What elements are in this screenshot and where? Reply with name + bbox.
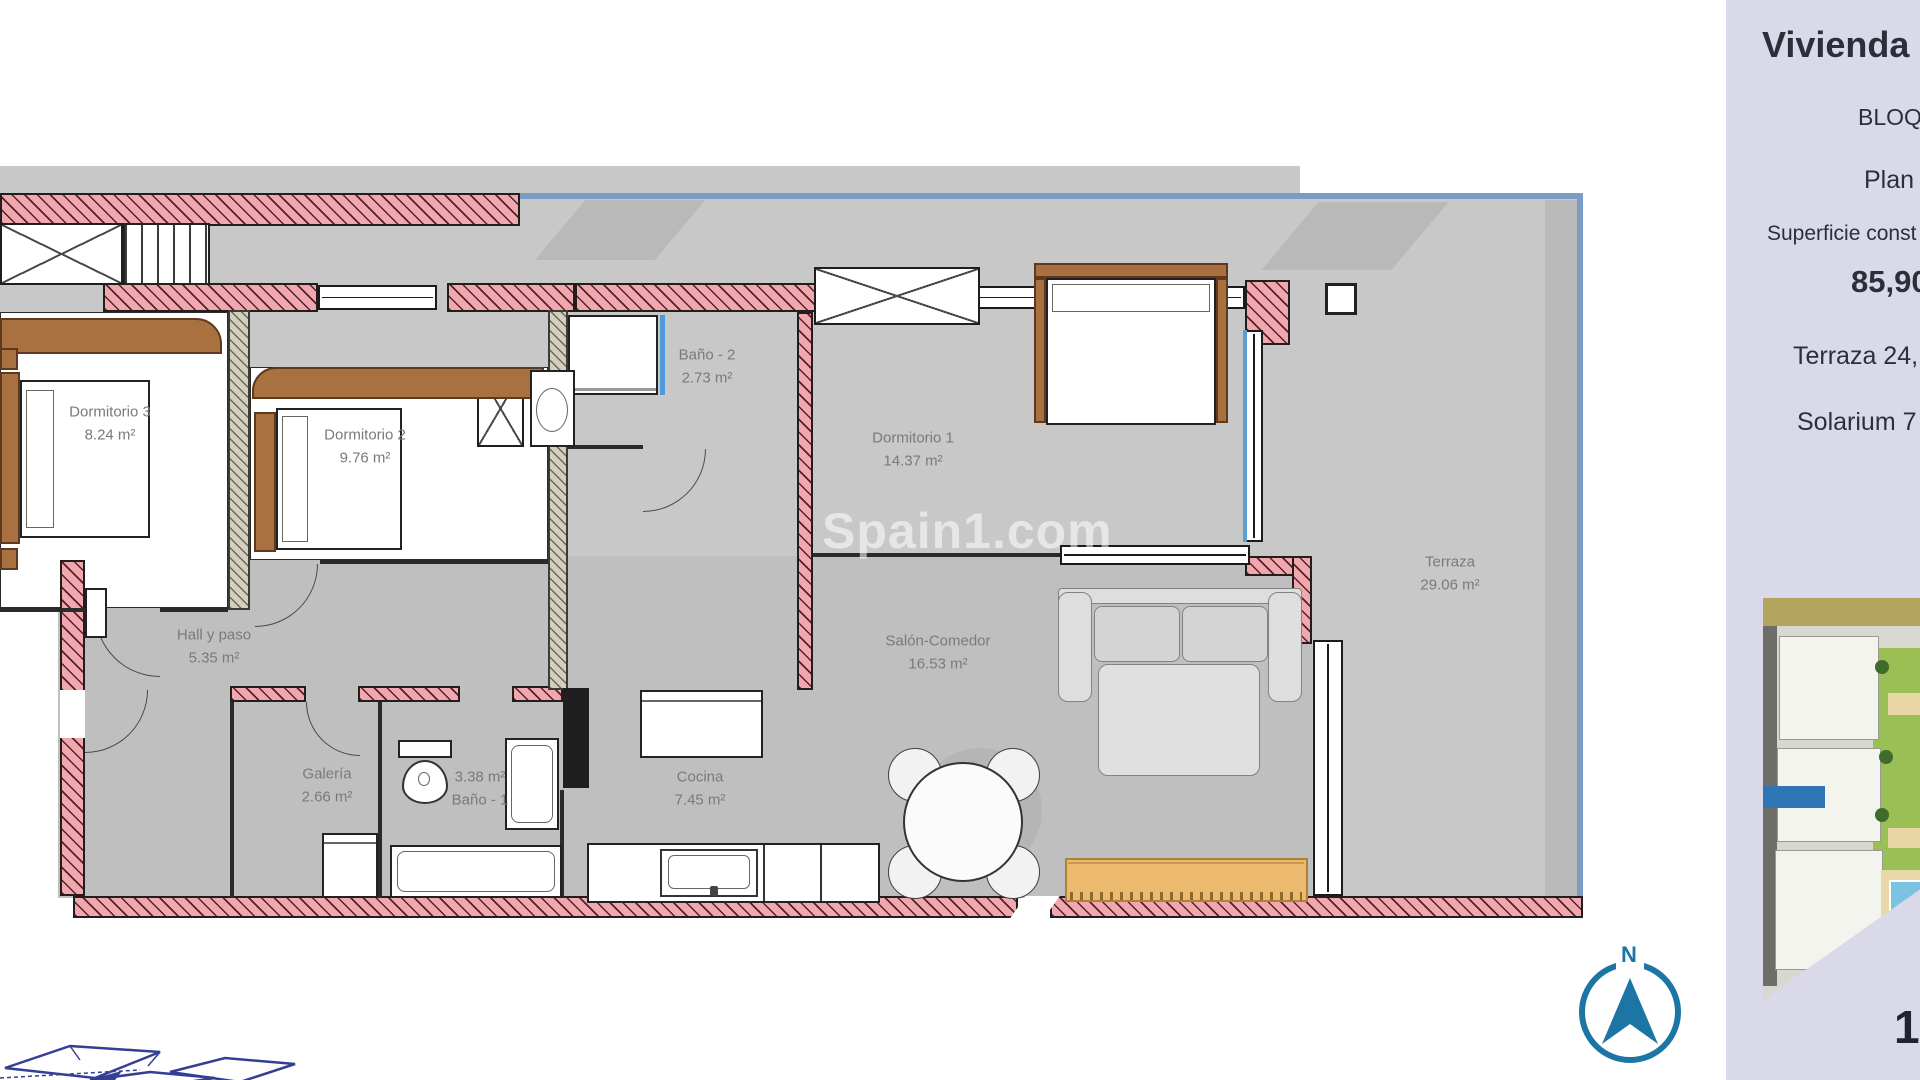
room-label-galeria: Galería2.66 m² bbox=[302, 764, 353, 809]
pillow bbox=[1052, 284, 1210, 312]
nightstand bbox=[0, 348, 18, 370]
site-building bbox=[1779, 636, 1879, 740]
solarium-area: Solarium 7 bbox=[1797, 408, 1917, 437]
partition-line bbox=[320, 560, 548, 564]
palm-tree bbox=[1879, 750, 1893, 764]
wardrobe bbox=[0, 318, 222, 354]
washer-line bbox=[324, 842, 376, 844]
washbasin bbox=[536, 388, 568, 432]
shadow-wedge bbox=[1545, 200, 1579, 896]
room-label-hall: Hall y paso5.35 m² bbox=[177, 625, 251, 670]
partition-line bbox=[378, 702, 382, 898]
sofa-armrest bbox=[1058, 592, 1092, 702]
room-label-terraza: Terraza29.06 m² bbox=[1420, 552, 1479, 597]
palm-tree bbox=[1875, 808, 1889, 822]
site-border-top bbox=[1763, 598, 1920, 626]
lot-boundary-right bbox=[1577, 193, 1583, 918]
site-patio bbox=[1888, 693, 1920, 715]
radiator bbox=[85, 588, 107, 638]
wall bbox=[230, 686, 306, 702]
page-number: 1 bbox=[1894, 1000, 1920, 1054]
partition-line bbox=[230, 702, 234, 898]
room-label-bano-1: 3.38 m²Baño - 1 bbox=[452, 767, 509, 812]
bench-top-line bbox=[1068, 862, 1304, 864]
wall bbox=[0, 193, 520, 226]
bathtub-inner bbox=[511, 745, 553, 823]
utility-shaft bbox=[563, 688, 589, 788]
unit-title: Vivienda bbox=[1762, 24, 1909, 66]
room-label-cocina: Cocina7.45 m² bbox=[675, 767, 726, 812]
surface-label: Superficie const bbox=[1767, 222, 1916, 246]
window-glass-line bbox=[1243, 330, 1247, 542]
bed-headboard bbox=[0, 372, 20, 544]
wall bbox=[447, 283, 575, 312]
shower-tray bbox=[568, 315, 658, 395]
sliding-door bbox=[1313, 640, 1343, 896]
bathtub-long-inner bbox=[397, 851, 555, 892]
room-label-dormitorio-2: Dormitorio 29.76 m² bbox=[324, 425, 406, 470]
info-sidebar: Vivienda BLOQ Plan Superficie const 85,9… bbox=[1726, 0, 1920, 1080]
wall bbox=[797, 312, 813, 690]
plan-top-strip bbox=[0, 166, 1300, 196]
sink-basin bbox=[668, 855, 750, 889]
room-label-dormitorio-1: Dormitorio 114.37 m² bbox=[872, 428, 954, 473]
site-plan-map bbox=[1763, 598, 1920, 1000]
floorplan-page: Dormitorio 38.24 m² Dormitorio 29.76 m² … bbox=[0, 0, 1920, 1080]
compass-north-label: N bbox=[1621, 942, 1637, 968]
elevator-shaft bbox=[0, 223, 123, 285]
room-label-salon: Salón-Comedor16.53 m² bbox=[885, 631, 990, 676]
wall bbox=[103, 283, 318, 312]
cabinet-line bbox=[642, 700, 761, 702]
sink-tap bbox=[710, 886, 718, 896]
sofa-armrest bbox=[1268, 592, 1302, 702]
counter-divider bbox=[763, 845, 765, 901]
stairs bbox=[123, 223, 210, 285]
wardrobe bbox=[252, 367, 544, 399]
outside-bottom-left bbox=[0, 612, 58, 1080]
partition-wall bbox=[228, 310, 250, 610]
window bbox=[1245, 330, 1263, 542]
terrace-area: Terraza 24, bbox=[1793, 342, 1918, 371]
room-label-dormitorio-3: Dormitorio 38.24 m² bbox=[69, 402, 151, 447]
door-gap bbox=[60, 690, 85, 738]
bed-rail bbox=[1034, 278, 1046, 423]
window bbox=[318, 285, 437, 310]
shower-glass bbox=[660, 315, 665, 395]
partition-line bbox=[0, 608, 95, 612]
bench-slats bbox=[1070, 892, 1302, 900]
sofa-cushion bbox=[1094, 606, 1180, 662]
unit-highlight bbox=[1763, 786, 1825, 808]
block-label: BLOQ bbox=[1858, 104, 1920, 131]
sofa-back bbox=[1058, 588, 1302, 604]
dining-table bbox=[903, 762, 1023, 882]
elevation-sketch bbox=[0, 1028, 320, 1080]
sofa-chaise bbox=[1098, 664, 1260, 776]
bed-headboard bbox=[254, 412, 276, 552]
wardrobe-closet bbox=[814, 267, 980, 325]
elevation-sketch-icon bbox=[0, 1028, 320, 1080]
pillow bbox=[26, 390, 54, 528]
site-patio bbox=[1888, 828, 1920, 848]
toilet-drain bbox=[418, 772, 430, 786]
terrace-column bbox=[1325, 283, 1357, 315]
wall bbox=[358, 686, 460, 702]
pillow bbox=[282, 416, 308, 542]
surface-value: 85,90 bbox=[1851, 264, 1920, 300]
counter-divider bbox=[820, 845, 822, 901]
toilet-tank bbox=[398, 740, 452, 758]
nightstand bbox=[0, 548, 18, 570]
shower-sill bbox=[570, 388, 656, 391]
bed-headboard bbox=[1034, 263, 1228, 278]
watermark: Spain1.com bbox=[822, 502, 1113, 560]
palm-tree bbox=[1875, 660, 1889, 674]
partition-wall bbox=[548, 310, 568, 690]
partition-line bbox=[568, 445, 643, 449]
partition-line bbox=[160, 608, 228, 612]
floor-label: Plan bbox=[1864, 166, 1914, 195]
room-label-bano-2: Baño - 22.73 m² bbox=[679, 345, 736, 390]
sofa-cushion bbox=[1182, 606, 1268, 662]
bed-rail bbox=[1216, 278, 1228, 423]
